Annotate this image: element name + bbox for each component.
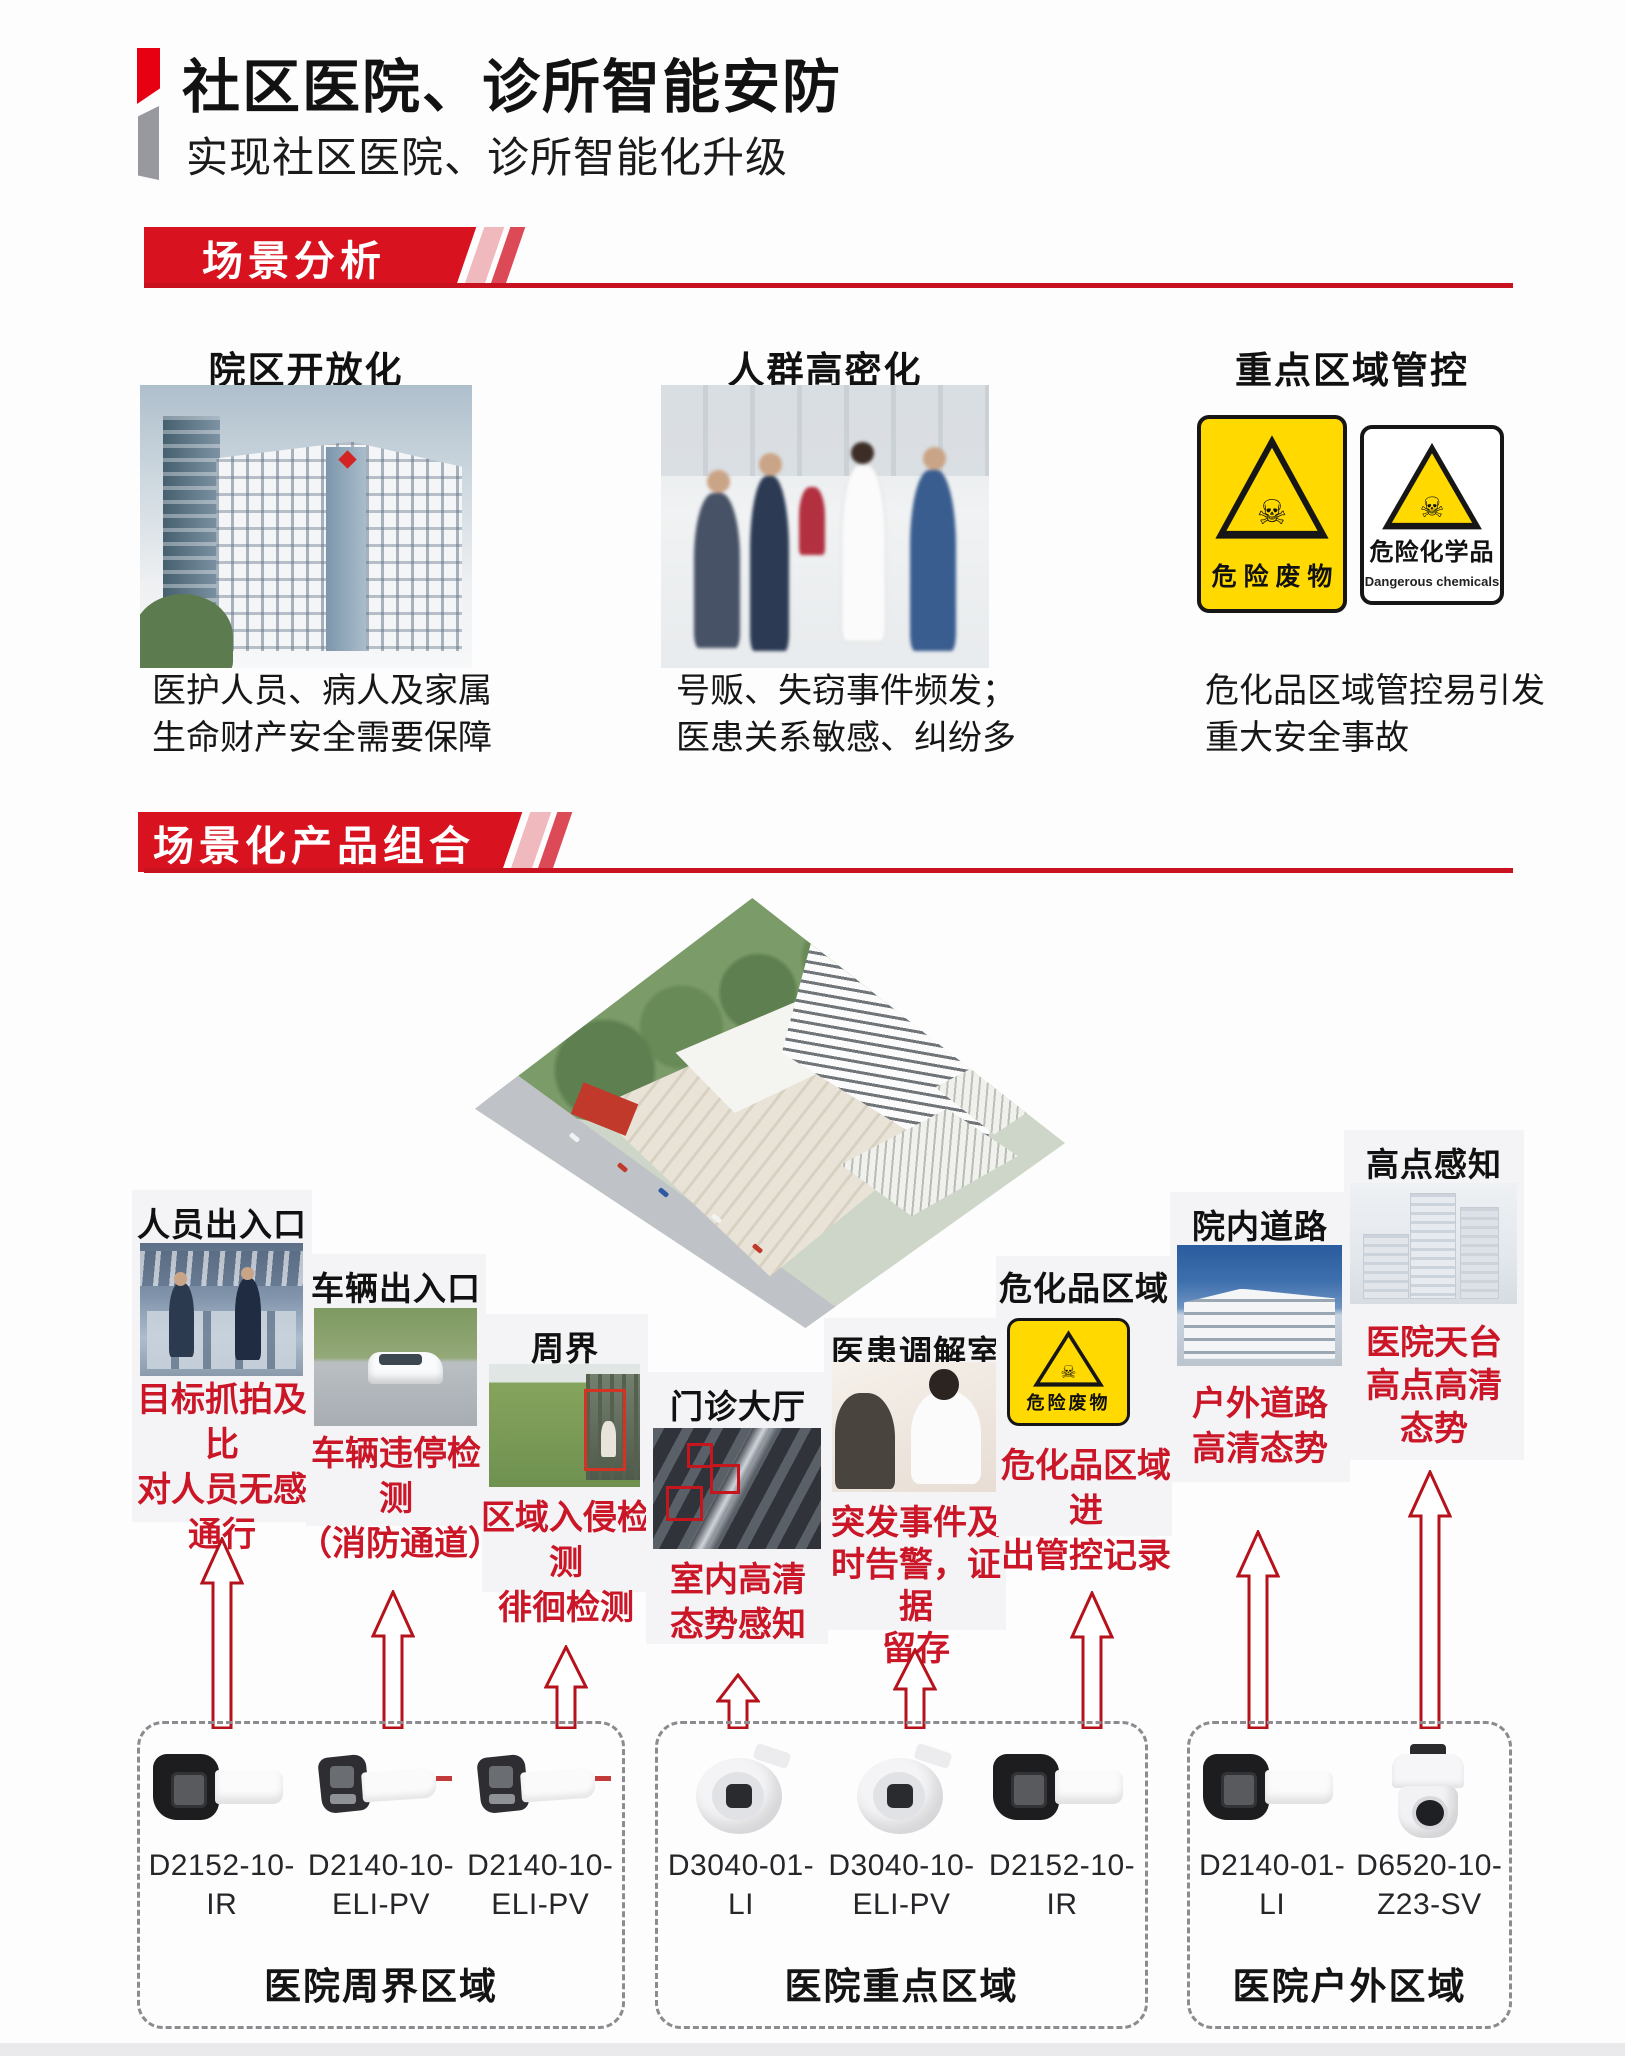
up-arrow-icon xyxy=(371,1590,415,1729)
sign-label: 危 险 废 物 xyxy=(1201,557,1343,593)
section-banner-product-combo: 场景化产品组合 xyxy=(138,812,658,872)
skull-icon: ☠ xyxy=(1060,1364,1076,1386)
column-caption-line: 医患关系敏感、纠纷多 xyxy=(676,715,1016,762)
campus-road-photo xyxy=(1177,1245,1342,1366)
column-caption-line: 号贩、失窃事件频发； xyxy=(676,668,1016,715)
hospital-building-photo xyxy=(140,385,472,668)
up-arrow-icon xyxy=(893,1648,937,1729)
up-arrow-icon xyxy=(544,1645,588,1729)
bullet-camera-icon xyxy=(147,1744,297,1846)
sign-sublabel: Dangerous chemicals xyxy=(1364,574,1500,589)
column-caption-line: 医护人员、病人及家属 xyxy=(152,668,492,715)
camera-item: D3040-10-ELI-PV xyxy=(824,1744,979,1924)
camera-model-label: D2140-10-ELI-PV xyxy=(463,1846,618,1924)
sign-label: 危险废物 xyxy=(1010,1389,1127,1415)
up-arrow-icon xyxy=(1408,1470,1452,1729)
group-label: 医院重点区域 xyxy=(658,1956,1145,2010)
banner-underline xyxy=(144,283,1513,288)
tile-notes: 区域入侵检测 徘徊检测 xyxy=(472,1496,660,1631)
up-arrow-icon xyxy=(1070,1591,1114,1729)
tile-title: 车辆出入口 xyxy=(306,1262,486,1310)
lobby-people xyxy=(661,385,989,668)
banner-underline xyxy=(144,868,1513,873)
tile-title: 高点感知 xyxy=(1346,1138,1522,1186)
perimeter-photo xyxy=(489,1364,640,1487)
sign-label: 危险化学品 xyxy=(1364,532,1500,567)
camera-model-label: D2152-10-IR xyxy=(144,1846,299,1924)
title-accent-bar-gray xyxy=(138,106,159,180)
tile-title: 周界 xyxy=(482,1322,648,1370)
hall-photo xyxy=(653,1428,821,1549)
column-title: 重点区域管控 xyxy=(1186,340,1518,394)
ptz-camera-icon xyxy=(1354,1744,1504,1846)
hazard-sign-icon-chemicals: ☠ 危险化学品 Dangerous chemicals xyxy=(1360,425,1504,605)
camera-item: D2140-01-LI xyxy=(1195,1744,1350,1924)
camera-model-label: D6520-10-Z23-SV xyxy=(1354,1846,1504,1924)
bullet-camera-icon xyxy=(306,1744,456,1846)
skull-icon: ☠ xyxy=(1257,496,1287,536)
camera-model-label: D3040-01-LI xyxy=(664,1846,819,1924)
section-banner-scene-analysis: 场景分析 xyxy=(144,227,604,287)
column-caption-line: 生命财产安全需要保障 xyxy=(152,715,492,762)
bullet-camera-icon xyxy=(465,1744,615,1846)
camera-item: D2152-10-IR xyxy=(144,1744,299,1924)
tile-notes: 车辆违停检测 （消防通道） xyxy=(298,1432,494,1567)
tile-notes: 户外道路 高清态势 xyxy=(1172,1382,1348,1472)
product-group-box-perimeter: D2152-10-IR D2140-10-ELI-PV D2140-10-ELI… xyxy=(137,1721,625,2029)
camera-model-label: D2152-10-IR xyxy=(985,1846,1140,1924)
entrance-photo xyxy=(140,1243,303,1376)
camera-model-label: D2140-10-ELI-PV xyxy=(304,1846,459,1924)
crowded-lobby-photo xyxy=(661,385,989,668)
facade-glass-strip xyxy=(326,447,366,651)
up-arrow-icon xyxy=(1236,1530,1280,1729)
tile-notes: 室内高清 态势感知 xyxy=(652,1558,824,1648)
camera-model-label: D2140-01-LI xyxy=(1195,1846,1350,1924)
column-caption-line: 危化品区域管控易引发 xyxy=(1205,668,1545,715)
tile-title: 院内道路 xyxy=(1172,1200,1348,1248)
product-group-box-outdoor: D2140-01-LI D6520-10-Z23-SV 医院户外区域 xyxy=(1187,1721,1512,2029)
tile-notes: 突发事件及 时告警，证据 留存 xyxy=(820,1502,1012,1670)
tile-title: 人员出入口 xyxy=(132,1198,312,1246)
up-arrow-icon xyxy=(200,1537,244,1729)
column-caption-line: 重大安全事故 xyxy=(1205,715,1409,762)
turret-camera-icon xyxy=(827,1744,977,1846)
page-title: 社区医院、诊所智能安防 xyxy=(182,40,842,124)
mediation-room-photo xyxy=(832,1362,997,1492)
banner-label: 场景化产品组合 xyxy=(138,812,490,872)
banner-label: 场景分析 xyxy=(144,227,444,287)
skull-icon: ☠ xyxy=(1419,494,1444,527)
bullet-camera-icon xyxy=(1197,1744,1347,1846)
title-accent-bar-red xyxy=(137,48,160,104)
tile-title: 门诊大厅 xyxy=(648,1380,828,1428)
group-label: 医院户外区域 xyxy=(1190,1956,1509,2010)
tile-notes: 医院天台 高点高清 态势 xyxy=(1346,1322,1522,1451)
page-subtitle: 实现社区医院、诊所智能化升级 xyxy=(186,124,788,185)
tile-notes: 目标抓拍及比 对人员无感 通行 xyxy=(122,1378,322,1558)
camera-model-label: D3040-10-ELI-PV xyxy=(824,1846,979,1924)
tile-notes: 危化品区域进 出管控记录 xyxy=(994,1444,1178,1579)
camera-item: D2152-10-IR xyxy=(985,1744,1140,1924)
bullet-camera-icon xyxy=(987,1744,1137,1846)
hazard-sign-icon-small: ☠ 危险废物 xyxy=(1007,1318,1130,1426)
group-label: 医院周界区域 xyxy=(140,1956,622,2010)
camera-item: D6520-10-Z23-SV xyxy=(1354,1744,1504,1924)
camera-item: D2140-10-ELI-PV xyxy=(304,1744,459,1924)
hospital-aerial-illustration xyxy=(475,898,1065,1328)
camera-item: D3040-01-LI xyxy=(664,1744,819,1924)
product-group-box-key-areas: D3040-01-LI D3040-10-ELI-PV D2152-10-IR … xyxy=(655,1721,1148,2029)
hazard-sign-icon-waste: ☠ 危 险 废 物 xyxy=(1197,415,1347,613)
camera-item: D2140-10-ELI-PV xyxy=(463,1744,618,1924)
vehicle-gate-photo xyxy=(314,1308,477,1426)
tile-title: 危化品区域 xyxy=(998,1262,1170,1310)
page-bottom-edge xyxy=(0,2043,1625,2056)
highpoint-towers-photo xyxy=(1350,1183,1517,1304)
turret-camera-icon xyxy=(666,1744,816,1846)
